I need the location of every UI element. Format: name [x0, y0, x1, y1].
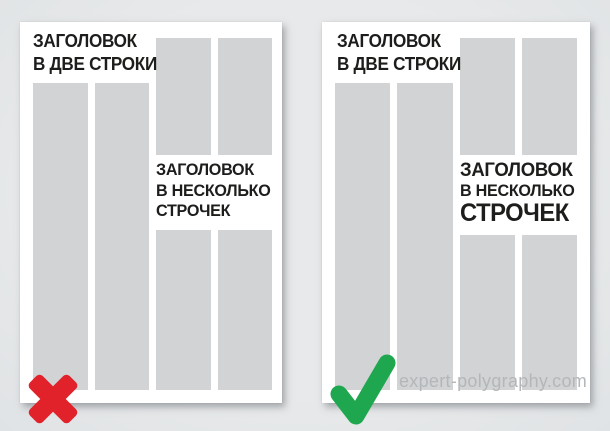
text-column-placeholder [218, 38, 273, 155]
page-mockup-correct: ЗАГОЛОВОК В ДВЕ СТРОКИ ЗАГОЛОВОК В НЕСКО… [322, 22, 590, 403]
headline-line: В ДВЕ СТРОКИ [33, 53, 157, 76]
text-column-placeholder [156, 38, 211, 155]
multi-line-headline-ragged: ЗАГОЛОВОК В НЕСКОЛЬКО СТРОЧЕК [156, 160, 270, 222]
text-column-placeholder [522, 38, 577, 155]
headline-line: СТРОЧЕК [156, 201, 270, 222]
headline-line: ЗАГОЛОВОК [33, 30, 157, 53]
text-column-placeholder [397, 83, 452, 390]
layout-comparison-canvas: ЗАГОЛОВОК В ДВЕ СТРОКИ ЗАГОЛОВОК В НЕСКО… [0, 0, 610, 431]
text-column-placeholder [156, 230, 211, 390]
red-cross-icon [26, 370, 80, 428]
headline-line: В ДВЕ СТРОКИ [337, 53, 461, 76]
headline-line: В НЕСКОЛЬКО [460, 181, 574, 200]
text-column-placeholder [522, 235, 577, 390]
text-column-placeholder [460, 38, 515, 155]
multi-line-headline-filled: ЗАГОЛОВОК В НЕСКОЛЬКО СТРОЧЕК [460, 160, 574, 227]
headline-line: ЗАГОЛОВОК [460, 160, 574, 181]
text-column-placeholder [95, 83, 150, 390]
headline-line: ЗАГОЛОВОК [156, 160, 270, 181]
two-line-headline: ЗАГОЛОВОК В ДВЕ СТРОКИ [337, 30, 461, 76]
two-line-headline: ЗАГОЛОВОК В ДВЕ СТРОКИ [33, 30, 157, 76]
headline-line: ЗАГОЛОВОК [337, 30, 461, 53]
page-mockup-wrong: ЗАГОЛОВОК В ДВЕ СТРОКИ ЗАГОЛОВОК В НЕСКО… [20, 22, 282, 403]
headline-line: СТРОЧЕК [460, 200, 574, 227]
green-check-icon [329, 353, 397, 427]
headline-line: В НЕСКОЛЬКО [156, 181, 270, 202]
text-column-placeholder [218, 230, 273, 390]
text-column-placeholder [33, 83, 88, 390]
text-column-placeholder [335, 83, 390, 390]
text-column-placeholder [460, 235, 515, 390]
watermark-text: expert-polygraphy.com [399, 371, 587, 392]
